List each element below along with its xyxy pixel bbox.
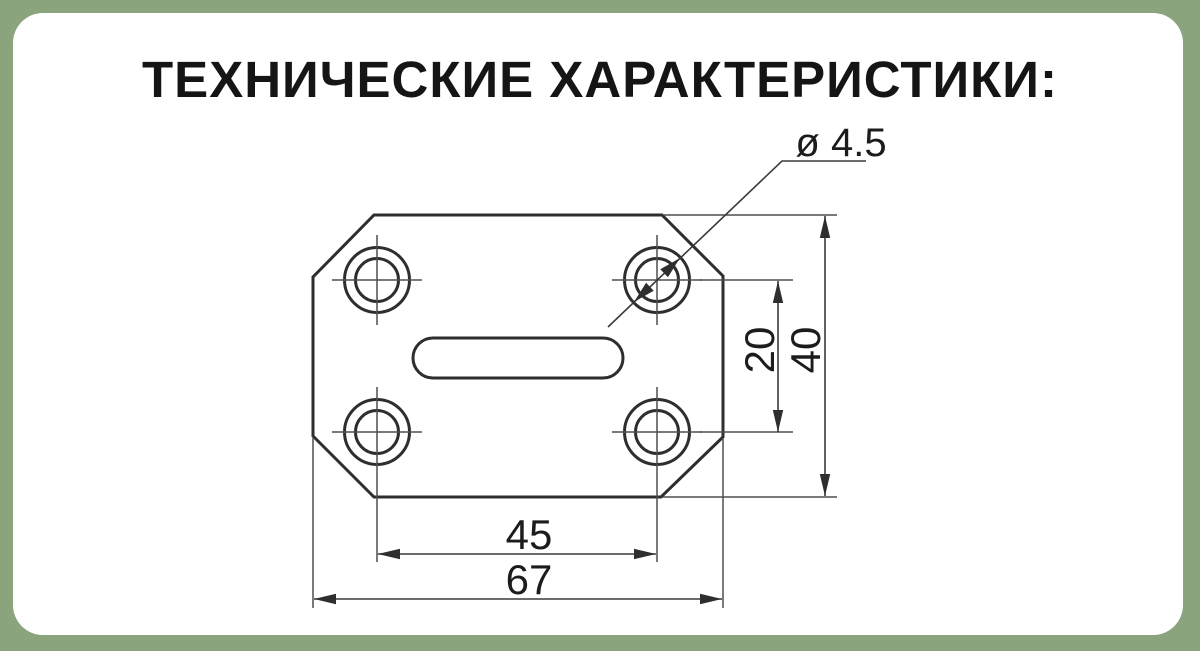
hole-centerlines <box>332 235 702 477</box>
dim-label-plate-width: 67 <box>506 556 553 603</box>
slot <box>413 338 623 378</box>
diameter-leader-line <box>608 161 866 327</box>
dim-label-hole-spacing-vertical: 20 <box>736 327 783 374</box>
dim-label-hole-spacing-horizontal: 45 <box>506 511 553 558</box>
extension-lines <box>313 215 837 608</box>
stage: ТЕХНИЧЕСКИЕ ХАРАКТЕРИСТИКИ: <box>0 0 1200 651</box>
dim-label-plate-height: 40 <box>782 327 829 374</box>
dim-label-hole-diameter: ø 4.5 <box>795 121 886 165</box>
technical-drawing: ø 4.5 20 40 45 67 <box>0 0 1200 651</box>
